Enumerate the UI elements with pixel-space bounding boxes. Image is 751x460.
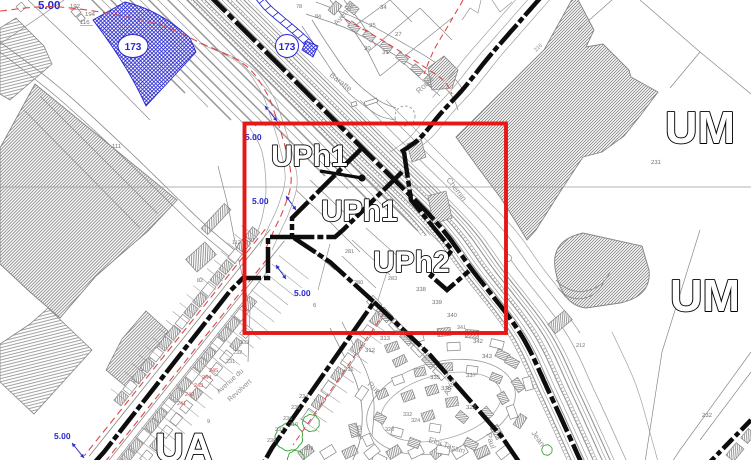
svg-text:112: 112 (232, 240, 241, 246)
svg-text:232: 232 (233, 350, 242, 356)
svg-text:35: 35 (369, 22, 376, 29)
svg-text:231: 231 (651, 159, 662, 166)
svg-text:309: 309 (304, 446, 313, 452)
svg-text:84: 84 (315, 14, 321, 20)
svg-text:281: 281 (345, 249, 354, 255)
svg-text:312: 312 (365, 347, 376, 354)
svg-text:UM: UM (670, 270, 740, 321)
svg-text:212: 212 (576, 343, 585, 349)
svg-text:341: 341 (457, 325, 466, 331)
svg-text:5.00: 5.00 (252, 196, 269, 206)
svg-text:231: 231 (226, 359, 235, 365)
svg-text:UPh1: UPh1 (321, 195, 398, 228)
svg-text:238: 238 (267, 438, 276, 444)
svg-text:237: 237 (275, 427, 284, 433)
svg-text:192: 192 (70, 3, 81, 10)
svg-text:336: 336 (441, 385, 452, 392)
svg-text:5.00: 5.00 (245, 132, 262, 142)
svg-text:243: 243 (194, 383, 203, 389)
svg-text:313: 313 (380, 335, 391, 342)
svg-text:UA: UA (155, 426, 213, 460)
svg-text:34: 34 (380, 4, 387, 11)
svg-text:324: 324 (411, 418, 420, 424)
svg-text:280: 280 (354, 280, 363, 286)
svg-text:332: 332 (403, 412, 412, 418)
svg-text:5.00: 5.00 (294, 288, 311, 298)
svg-text:UM: UM (665, 102, 735, 153)
svg-text:173: 173 (279, 42, 296, 53)
svg-text:320: 320 (385, 427, 394, 433)
svg-text:111: 111 (112, 143, 122, 150)
svg-text:82: 82 (197, 278, 203, 284)
svg-text:30: 30 (364, 45, 371, 52)
svg-text:245: 245 (209, 368, 218, 374)
svg-text:194: 194 (85, 11, 96, 18)
svg-text:116: 116 (80, 19, 90, 26)
svg-text:311: 311 (344, 366, 354, 373)
svg-text:234: 234 (299, 394, 308, 400)
svg-text:244: 244 (202, 375, 211, 381)
svg-text:236: 236 (283, 416, 292, 422)
svg-text:339: 339 (432, 299, 443, 306)
svg-text:242: 242 (185, 392, 194, 398)
svg-text:340: 340 (447, 312, 458, 319)
svg-text:9: 9 (207, 419, 210, 425)
svg-text:314: 314 (395, 330, 404, 336)
svg-text:UPh2: UPh2 (373, 246, 450, 279)
svg-text:338: 338 (416, 286, 427, 293)
svg-text:335: 335 (430, 374, 441, 381)
svg-text:322: 322 (466, 404, 477, 411)
svg-text:5.00: 5.00 (54, 431, 71, 441)
svg-text:235: 235 (291, 405, 300, 411)
svg-text:5.00: 5.00 (38, 0, 60, 12)
svg-text:343: 343 (482, 353, 493, 360)
svg-text:78: 78 (296, 4, 302, 10)
svg-text:UPh1: UPh1 (271, 140, 348, 173)
svg-text:27: 27 (395, 31, 402, 38)
svg-text:173: 173 (125, 42, 142, 53)
svg-text:310: 310 (289, 422, 298, 428)
svg-text:232: 232 (702, 412, 713, 419)
svg-text:27: 27 (249, 238, 255, 244)
svg-text:342: 342 (473, 338, 484, 345)
svg-text:241: 241 (177, 401, 186, 407)
svg-text:337: 337 (466, 372, 477, 379)
svg-text:31: 31 (382, 49, 389, 56)
svg-text:233: 233 (240, 340, 249, 346)
